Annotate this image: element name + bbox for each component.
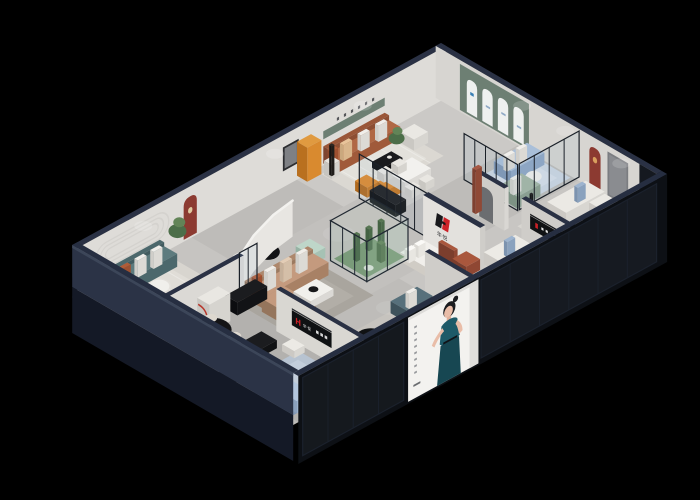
sculpture-figure [329,143,334,176]
table-decor [387,156,392,159]
orange-cabinet [297,134,321,182]
wall-glow [134,221,152,231]
black-backdrop: 华悦H华悦 [0,0,700,500]
wall-glow [266,149,284,159]
rust-trim-column [472,165,482,214]
wall-glow [556,126,574,136]
potted-plant-large [173,217,185,227]
wall-glow [612,158,630,168]
showroom-isometric-render: 华悦H华悦 [0,0,700,500]
black-tray [308,286,318,292]
wall-glow [354,101,372,111]
wall-glow [513,101,531,111]
potted-plant [393,127,403,135]
sofa-pillow [296,248,308,274]
sofa-pillow [280,257,292,283]
